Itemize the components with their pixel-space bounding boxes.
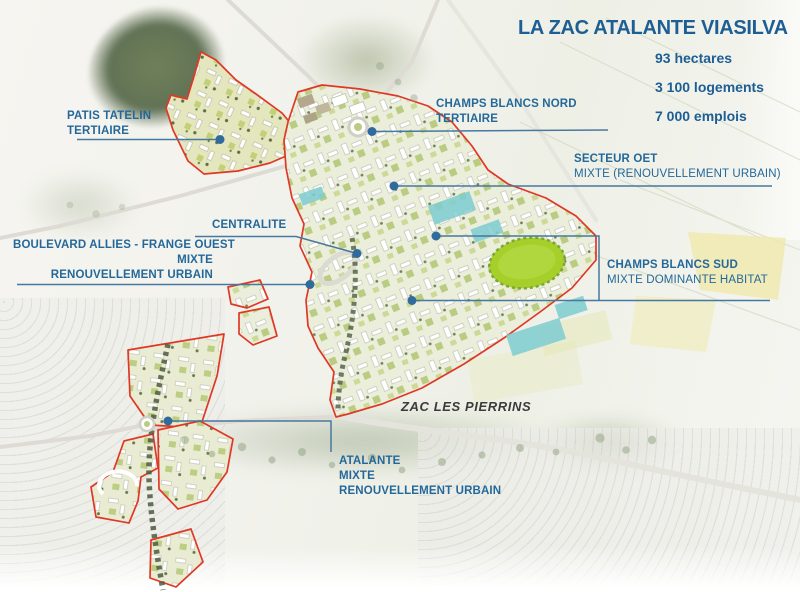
stat-emplois: 7 000 emplois bbox=[655, 108, 764, 137]
anchor-dot-champs-blancs-sud bbox=[408, 296, 417, 305]
roundabout-north bbox=[349, 118, 367, 136]
stat-logements: 3 100 logements bbox=[655, 79, 764, 108]
label-secteur-oet-line1: SECTEUR OET bbox=[574, 152, 781, 167]
label-secteur-oet-line2: MIXTE (RENOUVELLEMENT URBAIN) bbox=[574, 167, 781, 182]
roundabout-south bbox=[140, 417, 154, 431]
anchor-dot-patis-tatelin bbox=[216, 135, 225, 144]
label-champs-blancs-sud-line1: CHAMPS BLANCS SUD bbox=[607, 258, 768, 273]
anchor-dot-centralite bbox=[353, 249, 362, 258]
road-southwest bbox=[0, 426, 140, 447]
zone-atalante-east bbox=[158, 421, 233, 509]
label-atalante-line2: MIXTE bbox=[339, 469, 501, 484]
label-patis-tatelin: PATIS TATELIN TERTIAIRE bbox=[67, 109, 151, 139]
label-champs-blancs-nord: CHAMPS BLANCS NORD TERTIAIRE bbox=[436, 97, 577, 127]
stat-hectares: 93 hectares bbox=[655, 50, 764, 79]
label-centralite: CENTRALITE bbox=[212, 218, 286, 233]
key-figures: 93 hectares 3 100 logements 7 000 emploi… bbox=[655, 50, 764, 137]
anchor-dot-secteur-oet bbox=[390, 182, 399, 191]
label-boulevard-allies-line3: RENOUVELLEMENT URBAIN bbox=[13, 268, 213, 283]
zone-west-small-b bbox=[239, 307, 277, 345]
zone-atalante-north bbox=[128, 334, 224, 428]
zone-patis-tatelin bbox=[166, 52, 297, 174]
label-patis-tatelin-line1: PATIS TATELIN bbox=[67, 109, 151, 124]
map-canvas: LA ZAC ATALANTE VIASILVA 93 hectares 3 1… bbox=[0, 0, 800, 592]
label-secteur-oet: SECTEUR OET MIXTE (RENOUVELLEMENT URBAIN… bbox=[574, 152, 781, 182]
label-atalante: ATALANTE MIXTE RENOUVELLEMENT URBAIN bbox=[339, 454, 501, 499]
label-centralite-line1: CENTRALITE bbox=[212, 218, 286, 233]
anchor-dot-boulevard-allies bbox=[306, 280, 315, 289]
label-zac-les-pierrins: ZAC LES PIERRINS bbox=[401, 399, 531, 414]
anchor-dot-champs-blancs-sud-park bbox=[432, 232, 441, 241]
label-atalante-line3: RENOUVELLEMENT URBAIN bbox=[339, 484, 501, 499]
label-boulevard-allies-line1: BOULEVARD ALLIES - FRANGE OUEST bbox=[13, 238, 213, 253]
anchor-dot-champs-blancs-nord bbox=[368, 127, 377, 136]
label-patis-tatelin-line2: TERTIAIRE bbox=[67, 124, 151, 139]
label-champs-blancs-nord-line1: CHAMPS BLANCS NORD bbox=[436, 97, 577, 112]
page-title: LA ZAC ATALANTE VIASILVA bbox=[518, 17, 788, 40]
zac-zones bbox=[91, 52, 596, 587]
label-champs-blancs-sud-line2: MIXTE DOMINANTE HABITAT bbox=[607, 273, 768, 288]
label-atalante-line1: ATALANTE bbox=[339, 454, 501, 469]
label-boulevard-allies: BOULEVARD ALLIES - FRANGE OUEST MIXTE RE… bbox=[13, 238, 213, 283]
anchor-dot-atalante bbox=[164, 417, 173, 426]
label-champs-blancs-sud: CHAMPS BLANCS SUD MIXTE DOMINANTE HABITA… bbox=[607, 258, 768, 288]
label-champs-blancs-nord-line2: TERTIAIRE bbox=[436, 112, 577, 127]
label-boulevard-allies-line2: MIXTE bbox=[13, 253, 213, 268]
